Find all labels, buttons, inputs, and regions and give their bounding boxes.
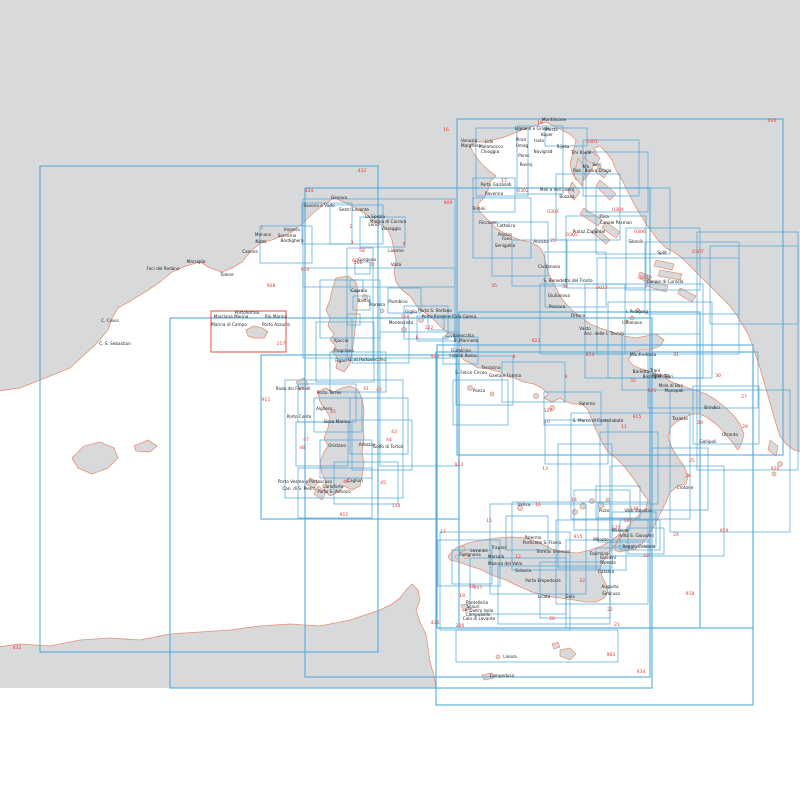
place-label: Riposto <box>600 560 616 565</box>
place-label: Viareggio <box>381 226 401 231</box>
place-label: Bisceglie <box>643 374 662 379</box>
place-label: S. Benedetto del Tronto <box>543 278 593 283</box>
place-label: C. S. Sebastian <box>99 341 131 346</box>
chart-number: 919 <box>720 528 729 534</box>
place-label: Canale Pasman <box>600 220 633 225</box>
place-label: C. Creus <box>101 318 119 323</box>
chart-number: 910 <box>301 267 310 273</box>
place-label: Mali e Veli Losinj <box>540 187 575 192</box>
place-label: S. Marco di Castellabate <box>573 418 624 423</box>
chart-number: 121 <box>624 518 633 524</box>
place-label: Tihi Kanal <box>570 150 591 155</box>
place-label: Trapani <box>490 545 506 550</box>
chart-number: 911 <box>340 512 349 518</box>
place-label: Golfo di Tortoli <box>373 444 403 449</box>
place-label: Senj <box>592 162 601 167</box>
chart-number: 914 <box>586 352 595 358</box>
place-label: Isola <box>534 138 544 143</box>
place-label: Favignana <box>459 552 481 557</box>
chart-number: 11 <box>621 424 627 430</box>
ischia-island <box>534 394 539 399</box>
place-label: Rijeka <box>557 144 570 149</box>
place-label: Porto Empedocle <box>525 578 561 583</box>
chart-number: 42 <box>376 387 382 393</box>
place-label: Porto Azzurro <box>262 322 290 327</box>
chart-number: 0302 <box>517 188 529 194</box>
chart-number: 15 <box>486 518 492 524</box>
chart-number: 48 <box>299 445 305 451</box>
paxos-island <box>778 462 783 467</box>
place-label: Novigrad <box>534 149 553 154</box>
chart-number: 434 <box>637 669 646 675</box>
chart-number: 10 <box>544 419 550 425</box>
place-label: Milazzo <box>593 537 609 542</box>
chart-number: 918 <box>686 591 695 597</box>
place-label: Linosa <box>503 654 517 659</box>
place-label: Porticello S. Flavia <box>523 540 562 545</box>
place-label: Monaco <box>255 232 272 237</box>
chart-number: 0307 <box>692 249 704 255</box>
chart-number: 435 <box>431 620 440 626</box>
ventotene-island <box>490 392 494 396</box>
place-label: Messina <box>612 528 629 533</box>
place-label: Pizzo <box>599 508 610 513</box>
chart-number: 3 <box>351 240 354 246</box>
place-label: Ponza <box>473 388 486 393</box>
chart-number: 14 <box>571 497 577 503</box>
place-label: Genova <box>331 195 348 200</box>
chart-number: 26 <box>685 473 691 479</box>
chart-number: 20 <box>549 616 555 622</box>
chart-number: 0017 <box>596 285 608 291</box>
place-label: Siracusa <box>602 591 620 596</box>
chart-number: 24 <box>673 532 679 538</box>
place-label: Gaeta e Formia <box>489 373 522 378</box>
chart-number: 29 <box>697 420 703 426</box>
place-label: Gela <box>565 594 575 599</box>
chart-number: 912 <box>455 462 464 468</box>
place-label: Marina di Campo <box>211 322 247 327</box>
place-label: Capraia <box>351 288 368 293</box>
chart-number: 13 <box>542 466 548 472</box>
place-label: I. Pelagosa <box>626 309 649 314</box>
place-label: Rab <box>573 168 581 173</box>
place-label: Anc. delle I. Tremiti <box>584 331 624 336</box>
chart-number: 27 <box>741 394 747 400</box>
place-label: Ajaccio <box>334 338 349 343</box>
nautical-chart-index-map: 1234678910111213141516161717181819202122… <box>0 0 800 800</box>
place-label: Gorgona <box>358 257 376 262</box>
chart-number: 0304 <box>612 207 624 213</box>
chart-number: 909 <box>444 200 453 206</box>
chart-number: 963 <box>607 652 616 658</box>
place-label: Livorno <box>388 248 404 253</box>
place-label: Monfalcone <box>542 117 567 122</box>
place-label: Oristano <box>328 443 346 448</box>
place-label: Marina di Carrara <box>370 219 407 224</box>
ionian-island <box>772 472 776 476</box>
place-label: Baska Draga <box>585 168 612 173</box>
chart-number: 1 <box>261 225 264 231</box>
chart-number: 430 <box>768 118 777 124</box>
chart-number: 915 <box>633 414 642 420</box>
place-label: Licata <box>538 594 551 599</box>
place-label: Riccione <box>479 220 497 225</box>
place-label: Gallipoli <box>700 439 717 444</box>
place-label: Marsala <box>488 554 505 559</box>
chart-number: 117 <box>277 341 286 347</box>
place-label: Cala di Levante <box>463 616 496 621</box>
chart-index-svg: 1234678910111213141516161717181819202122… <box>0 0 800 800</box>
place-label: Otranto <box>722 432 739 437</box>
aeolian-island-5 <box>606 498 610 502</box>
place-label: Bosa Marina <box>324 419 350 424</box>
place-label: Nizza <box>255 239 267 244</box>
place-label: Figari <box>335 358 346 363</box>
chart-number: 12 <box>515 554 521 560</box>
place-label: Salerno <box>579 401 595 406</box>
chart-number: 45 <box>380 480 386 486</box>
place-label: Porec <box>518 153 530 158</box>
chart-number: 432 <box>13 645 22 651</box>
place-label: Chioggia <box>481 149 500 154</box>
place-label: Savona e Vado <box>303 203 334 208</box>
chart-number: 9 <box>565 374 568 380</box>
place-label: Split <box>657 250 667 255</box>
place-label: Pianosa <box>369 302 386 307</box>
place-label: Propriano <box>334 348 354 353</box>
place-label: Vada <box>391 262 402 267</box>
chart-number: 31 <box>673 352 679 358</box>
place-label: G. di Portovecchio <box>348 357 386 362</box>
chart-number: 911 <box>262 397 271 403</box>
place-label: Porto Conte <box>287 414 312 419</box>
place-label: Crotone <box>677 485 694 490</box>
ponza-island <box>468 386 473 391</box>
place-label: Porto Garibaldi <box>480 182 511 187</box>
place-label: Fano <box>502 236 512 241</box>
place-label: Sibenik <box>628 239 644 244</box>
chart-number: 34 <box>562 284 568 290</box>
place-label: Rimini <box>472 206 485 211</box>
place-label: Piran <box>516 137 527 142</box>
chart-number: 6 <box>416 335 419 341</box>
place-label: Porto Ercole e Cala Galera <box>422 314 477 319</box>
chart-number: 44 <box>386 437 392 443</box>
place-label: Rada dei Fornelli <box>276 386 311 391</box>
chart-number: 47 <box>303 437 309 443</box>
place-label: Rovinj <box>520 162 533 167</box>
chart-number: 25 <box>689 458 695 464</box>
place-label: Giglio <box>405 309 417 314</box>
place-label: Canale di Curzola <box>647 279 684 284</box>
linosa-island <box>496 655 500 659</box>
place-label: Marsiglia <box>187 259 206 264</box>
place-label: Porto S. Stefano <box>418 308 452 313</box>
place-label: Pescara <box>549 304 566 309</box>
place-label: Trani <box>649 368 660 373</box>
place-label: Piombino <box>388 299 408 304</box>
place-label: Ustica <box>518 502 531 507</box>
chart-number: 58 <box>359 248 365 254</box>
chart-number: 230 <box>456 623 465 629</box>
place-label: Lampedusa <box>490 673 515 678</box>
place-label: Monopoli <box>665 388 684 393</box>
place-label: Sestri Levante <box>339 207 369 212</box>
place-label: Cagliari <box>347 478 363 483</box>
chart-number: 28 <box>742 424 748 430</box>
chart-number: 32 <box>630 378 636 384</box>
place-label: Porto Torres <box>317 390 342 395</box>
place-label: Koper <box>541 132 553 137</box>
chart-number: 119 <box>392 503 401 509</box>
chart-number: 0306 <box>634 229 646 235</box>
place-label: Villa S. Giovanni <box>620 533 654 538</box>
place-label: Cattolica <box>497 223 516 228</box>
place-label: Cannes <box>242 249 258 254</box>
place-label: Ancona <box>533 239 549 244</box>
aeolian-island-2 <box>590 499 595 504</box>
chart-number: 4 <box>403 241 406 247</box>
chart-number: 127 <box>544 408 553 414</box>
pianosa-island <box>380 309 384 313</box>
chart-number: 30 <box>715 373 721 379</box>
place-label: Tolone <box>219 272 234 277</box>
chart-number: 17 <box>440 529 446 535</box>
chart-number: 21 <box>614 622 620 628</box>
place-label: Giulianova <box>548 293 571 298</box>
place-label: Lido di Roma <box>449 353 477 358</box>
place-label: I. Pianosa <box>622 320 642 325</box>
aeolian-island-4 <box>573 510 578 515</box>
chart-number: 917 <box>474 585 483 591</box>
place-label: Barletta <box>633 369 650 374</box>
place-label: Imperia <box>284 227 300 232</box>
place-label: S. Felice Circeo <box>455 370 487 375</box>
gorgona-island <box>370 262 374 266</box>
place-label: Brindisi <box>704 405 720 410</box>
chart-number: 22 <box>607 607 613 613</box>
chart-number: 23 <box>643 553 649 559</box>
chart-number: 915 <box>574 534 583 540</box>
chart-number: 122 <box>425 325 434 331</box>
place-label: Catania <box>598 569 615 574</box>
chart-number: 19 <box>459 593 465 599</box>
place-label: Umag <box>516 143 529 148</box>
chart-number: 920 <box>771 466 780 472</box>
place-label: Can. di S. Pietro <box>282 486 316 491</box>
place-label: Sciacca <box>515 568 531 573</box>
place-label: Ravenna <box>485 191 504 196</box>
place-label: Civitanova <box>538 264 561 269</box>
place-label: Vibo Valentia <box>624 508 652 513</box>
chart-number: 908 <box>267 283 276 289</box>
place-label: Foci del Rodano <box>146 266 180 271</box>
chart-number: 33 <box>579 578 585 584</box>
place-label: Taranto <box>671 416 688 421</box>
chart-number: 25 <box>550 238 556 244</box>
place-label: Senigallia <box>495 243 516 248</box>
place-label: Porto S. Antioco <box>317 489 351 494</box>
place-label: S. Marinella <box>454 338 479 343</box>
chart-number: 432 <box>358 168 367 174</box>
chart-number: 16 <box>535 502 541 508</box>
place-label: Manfredonia <box>630 352 657 357</box>
place-label: Montecristo <box>389 320 414 325</box>
chart-number: 41 <box>363 386 369 392</box>
place-label: Prolaz Zapuntel <box>573 229 606 234</box>
place-label: Bordighera <box>280 238 304 243</box>
chart-number: 35 <box>491 283 497 289</box>
place-label: Rio Marina <box>265 314 288 319</box>
place-label: Termini Imerese <box>535 549 570 554</box>
chart-number: 0301 <box>586 139 598 145</box>
place-label: Alghero <box>316 406 333 411</box>
chart-number: 434 <box>305 188 314 194</box>
place-label: Mazara del Vallo <box>488 561 523 566</box>
place-label: Zara <box>599 214 609 219</box>
chart-number: 8 <box>513 354 516 360</box>
place-label: Marciana Marina <box>214 314 249 319</box>
chart-number: 921 <box>648 388 657 394</box>
chart-number: 2 <box>350 224 353 230</box>
place-label: Ortona <box>571 313 586 318</box>
place-label: Augusta <box>601 584 619 589</box>
chart-number: 16 <box>443 127 449 133</box>
chart-number: 43 <box>391 429 397 435</box>
chart-number: 913 <box>431 354 440 360</box>
chart-number: 0303 <box>547 209 559 215</box>
place-label: Bozava <box>559 194 575 199</box>
chart-number: 922 <box>532 338 541 344</box>
place-label: Reggio Calabria <box>623 544 656 549</box>
